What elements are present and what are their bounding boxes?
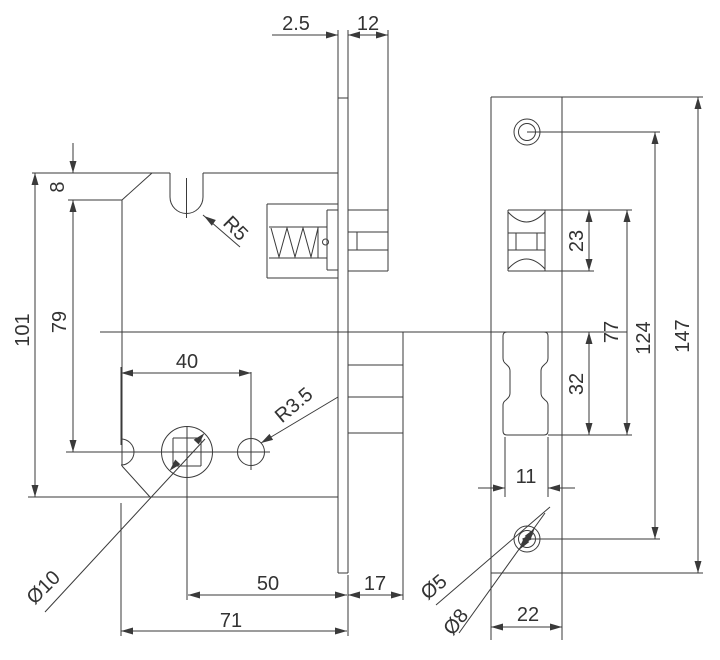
dimension-label-dim-2-5: 2.5 <box>282 13 310 35</box>
dimension-arrowhead <box>624 210 631 222</box>
dimension-arrowhead <box>652 132 659 144</box>
dimension-label-dim-r5: R5 <box>218 212 252 246</box>
dimension-arrowhead <box>239 370 251 377</box>
dimension-label-dim-d5: Ø5 <box>417 570 452 604</box>
dimension-arrowhead <box>548 485 560 492</box>
drawing-line <box>122 173 152 200</box>
dimension-arrowhead <box>32 173 39 185</box>
dimension-label-dim-147: 147 <box>672 319 694 352</box>
dimension-label-dim-r3-5: R3.5 <box>271 383 318 427</box>
dimension-arrowhead <box>121 370 133 377</box>
dimension-arrowhead <box>491 624 503 631</box>
dimension-arrowhead <box>652 527 659 539</box>
drawing-path <box>508 259 545 269</box>
dimension-arrowhead <box>550 624 562 631</box>
dimension-label-dim-d8: Ø8 <box>439 605 473 640</box>
dimension-arrowhead <box>586 332 593 344</box>
dimension-arrowhead <box>624 423 631 435</box>
drawing-circle <box>323 239 329 245</box>
dimension-labels: 2.51287910140R5R3.5Ø10501771233277124147… <box>12 13 694 640</box>
dimension-arrowhead <box>586 423 593 435</box>
drawing-path <box>503 332 548 435</box>
lock-technical-drawing-page: 2.51287910140R5R3.5Ø10501771233277124147… <box>0 0 720 660</box>
dimension-label-dim-23: 23 <box>566 230 588 252</box>
dimension-arrowhead <box>586 259 593 271</box>
dimension-label-dim-40: 40 <box>176 351 198 373</box>
dimension-label-dim-32: 32 <box>566 373 588 395</box>
dimension-label-dim-50: 50 <box>257 573 279 595</box>
drawing-line <box>436 507 550 605</box>
dimension-label-dim-79: 79 <box>49 311 71 333</box>
dimension-label-dim-22: 22 <box>517 604 539 626</box>
dimension-label-dim-8: 8 <box>47 181 69 192</box>
dimension-arrowhead <box>326 32 338 39</box>
dimension-label-dim-11: 11 <box>516 466 537 488</box>
lock-technical-drawing: 2.51287910140R5R3.5Ø10501771233277124147… <box>0 0 720 660</box>
dimension-arrowhead <box>493 485 505 492</box>
dimension-arrowhead <box>121 628 133 635</box>
dimension-arrowhead <box>70 440 77 452</box>
dimension-label-dim-71: 71 <box>220 610 242 632</box>
drawing-path <box>271 228 318 257</box>
dimension-label-dim-77: 77 <box>601 321 623 343</box>
drawing-path <box>508 212 545 222</box>
dimension-arrowhead <box>348 592 360 599</box>
dimension-arrowhead <box>391 592 403 599</box>
dimension-arrowhead <box>695 561 702 573</box>
dimension-arrowhead <box>335 592 347 599</box>
drawing-line <box>45 439 205 612</box>
dimension-label-dim-17: 17 <box>364 573 386 595</box>
dimension-arrowhead <box>70 161 77 173</box>
dimension-arrowhead <box>695 97 702 109</box>
dimension-label-dim-124: 124 <box>633 321 655 354</box>
dimension-arrowhead <box>586 210 593 222</box>
dimension-arrowhead <box>335 628 347 635</box>
dimension-arrowhead <box>188 592 200 599</box>
dimension-label-dim-d10: Ø10 <box>23 567 65 609</box>
drawing-line <box>122 466 150 497</box>
dimension-label-dim-12: 12 <box>357 13 379 35</box>
dimension-arrowhead <box>259 434 273 446</box>
dimension-label-dim-101: 101 <box>12 313 34 346</box>
dimension-arrowhead <box>32 485 39 497</box>
dimension-arrowhead <box>70 200 77 212</box>
